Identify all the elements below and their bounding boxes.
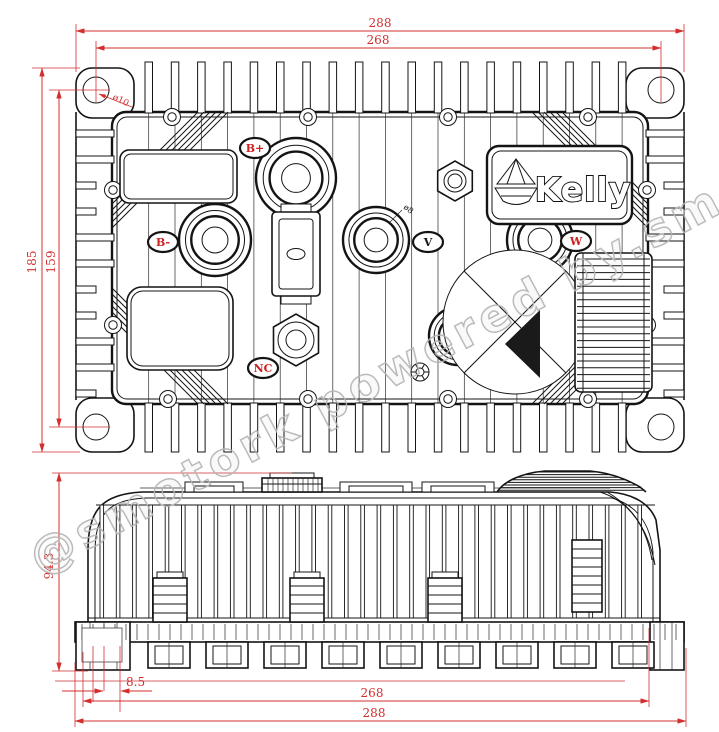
terminal-label-nc: NC (254, 362, 273, 375)
dim-width-overall-bottom: 288 (363, 706, 386, 720)
fin-bottom (540, 403, 548, 452)
fin-bottom (487, 403, 495, 452)
screw-boss (440, 391, 457, 408)
side-fin (328, 505, 332, 618)
fin-top (618, 62, 626, 113)
fin-right (664, 312, 684, 319)
fin-top (434, 62, 442, 113)
side-fin (279, 505, 283, 618)
drawing-canvas: B+B-VWNC (0, 0, 719, 732)
right-foot (650, 622, 684, 670)
dim-height-overall: 185 (25, 251, 39, 274)
fin-top (487, 62, 495, 113)
top-boss (422, 482, 494, 492)
fin-left (76, 390, 96, 397)
fin-top (250, 62, 258, 113)
fin-bottom (434, 403, 442, 452)
left-foot-detail (82, 628, 122, 662)
fin-left (76, 286, 96, 293)
fin-top (303, 62, 311, 113)
fin-bottom (171, 403, 179, 452)
cover-plate-top-left (120, 150, 237, 203)
fin-left (76, 156, 114, 163)
cover-plate-bottom-left (127, 287, 233, 370)
dim-width-holes-top: 268 (367, 33, 390, 47)
screw-boss (580, 391, 597, 408)
pedestal (290, 578, 324, 622)
side-fin (345, 505, 349, 618)
kelly-logo-text: Kelly (535, 170, 632, 209)
corner-hole (648, 414, 674, 440)
terminal-label-b-minus: B- (156, 236, 170, 249)
technical-drawing: B+B-VWNC (0, 0, 719, 732)
side-fin (230, 505, 234, 618)
terminal (179, 204, 251, 276)
kelly-logo: Kelly (487, 146, 632, 224)
screw-boss (639, 182, 656, 199)
fin-left (76, 234, 114, 241)
top-boss (340, 482, 412, 492)
base-flange (75, 622, 684, 642)
terminal-label-b-plus: B+ (246, 142, 265, 155)
fin-left (76, 182, 96, 189)
side-fin (377, 505, 381, 618)
screw-boss (300, 109, 317, 126)
fin-top (540, 62, 548, 113)
fin-right (664, 390, 684, 397)
fin-bottom (513, 403, 521, 452)
fin-bottom (382, 403, 390, 452)
fin-bottom (618, 403, 626, 452)
fin-bottom (145, 403, 153, 452)
fin-top (355, 62, 363, 113)
fin-bottom (566, 403, 574, 452)
screw-boss (440, 109, 457, 126)
fin-left (76, 208, 96, 215)
side-fin (556, 505, 560, 618)
side-fin (263, 505, 267, 618)
screw-boss (105, 317, 122, 334)
fin-top (171, 62, 179, 113)
side-fin (524, 505, 528, 618)
side-fin (475, 505, 479, 618)
fin-left (76, 130, 114, 137)
fin-right (664, 286, 684, 293)
side-fin (214, 505, 218, 618)
fin-top (224, 62, 232, 113)
fin-right (646, 156, 684, 163)
side-fin (540, 505, 544, 618)
side-fin (491, 505, 495, 618)
fin-right (646, 130, 684, 137)
fin-left (76, 338, 114, 345)
pedestal (428, 578, 462, 622)
side-fin (247, 505, 251, 618)
terminal-label-phase-v: V (423, 236, 433, 249)
dim-width-overall-top: 288 (369, 16, 392, 30)
side-fin (508, 505, 512, 618)
fin-top (329, 62, 337, 113)
fin-top (145, 62, 153, 113)
fin-top (566, 62, 574, 113)
side-fin (198, 505, 202, 618)
dim-height-holes: 159 (44, 251, 58, 274)
fin-top (382, 62, 390, 113)
terminal (343, 207, 409, 273)
fin-left (76, 364, 114, 371)
screw-boss (160, 391, 177, 408)
dim-foot-offset: 8.5 (126, 675, 145, 689)
fin-top (513, 62, 521, 113)
side-fin (605, 505, 609, 618)
fin-top (198, 62, 206, 113)
screw-boss (580, 109, 597, 126)
pedestal (153, 578, 187, 622)
fin-left (76, 260, 114, 267)
dim-width-holes-bottom: 268 (361, 686, 384, 700)
fin-bottom (408, 403, 416, 452)
fin-top (592, 62, 600, 113)
fin-left (76, 312, 96, 319)
side-fin (622, 505, 626, 618)
fin-top (408, 62, 416, 113)
side-fin (361, 505, 365, 618)
side-fin (410, 505, 414, 618)
fin-bottom (592, 403, 600, 452)
screw-boss (164, 109, 181, 126)
side-fin (393, 505, 397, 618)
fin-bottom (461, 403, 469, 452)
screw-boss (105, 182, 122, 199)
fin-top (277, 62, 285, 113)
fin-top (461, 62, 469, 113)
center-bracket (272, 204, 320, 304)
